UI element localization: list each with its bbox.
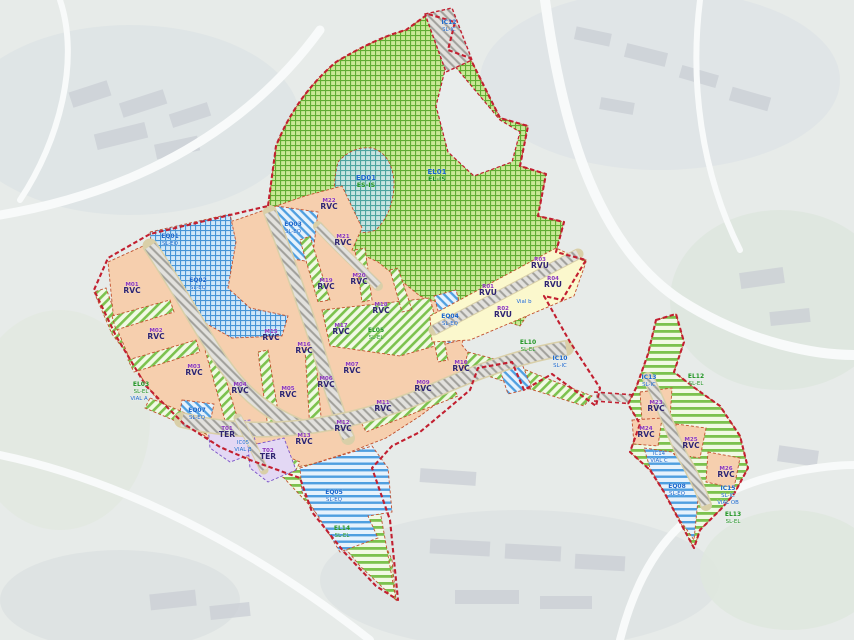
zone-label-m15: M15RVC	[262, 329, 280, 342]
zone-label-m17: M17RVC	[332, 323, 350, 336]
zoning-map-screenshot: IC12SL-ICEL01EL-ISED01ES-ISEQ03SL-EQEQ01…	[0, 0, 854, 640]
zone-label-m16: M16RVC	[295, 342, 313, 355]
zone-label-m11: M11RVC	[374, 400, 392, 413]
zone-label-m10: M10RVC	[452, 360, 470, 373]
zoning-map: IC12SL-ICEL01EL-ISED01ES-ISEQ03SL-EQEQ01…	[0, 0, 854, 640]
zone-label-m05: M05RVC	[279, 386, 297, 399]
zone-label-m06: M06RVC	[317, 376, 335, 389]
zone-label-t01: T01TER	[219, 426, 235, 439]
zone-label-t02: T02TER	[260, 448, 276, 461]
zone-label-m13: M13RVC	[295, 433, 313, 446]
zone-label-m21: M21RVC	[334, 234, 352, 247]
zone-label-m03: M03RVC	[185, 364, 203, 377]
zone-label-m22: M22RVC	[320, 198, 338, 211]
zone-label-m26: M26RVC	[717, 466, 735, 479]
zone-label-m07: M07RVC	[343, 362, 361, 375]
zone-label-m24: M24RVC	[637, 426, 655, 439]
zone-label-m09: M09RVC	[414, 380, 432, 393]
zone-label-m19: M19RVC	[317, 278, 335, 291]
zone-label-m04: M04RVC	[231, 382, 249, 395]
zone-label-m20: M20RVC	[350, 273, 368, 286]
zone-label-m12: M12RVC	[334, 420, 352, 433]
zone-label-vial-b: Vial b	[516, 299, 532, 305]
zone-label-el01: EL01EL-IS	[428, 168, 447, 183]
zone-label-vial-a: VIAL A	[130, 396, 148, 402]
zone-label-m18: M18RVC	[372, 302, 390, 315]
zone-label-ed01: ED01ES-IS	[356, 174, 376, 189]
zone-label-m25: M25RVC	[682, 437, 700, 450]
zone-label-m01: M01RVC	[123, 282, 141, 295]
zone-label-m23: M23RVC	[647, 400, 665, 413]
zone-label-m02: M02RVC	[147, 328, 165, 341]
